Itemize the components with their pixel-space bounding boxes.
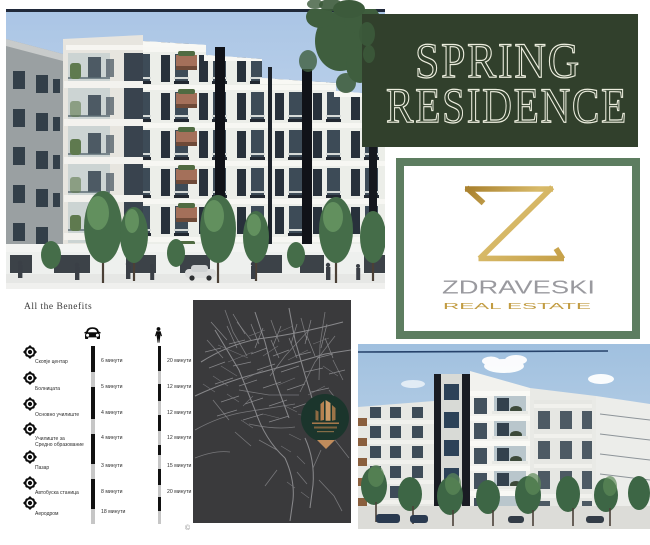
svg-text:ZDRAVESKI: ZDRAVESKI	[442, 278, 595, 298]
svg-text:REAL ESTATE: REAL ESTATE	[443, 301, 592, 311]
svg-text:RESIDENCE: RESIDENCE	[386, 77, 628, 133]
